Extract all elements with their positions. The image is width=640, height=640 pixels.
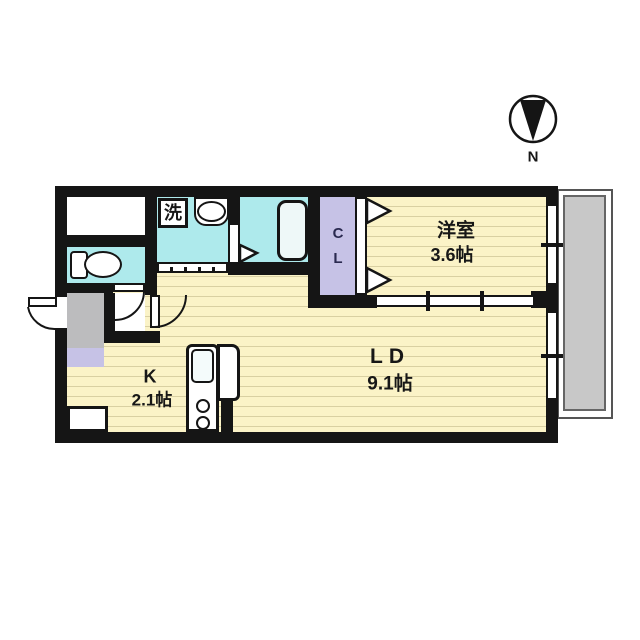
partition-tick-2	[480, 291, 484, 311]
wall-bath-bottom	[228, 262, 320, 275]
wall-genkan-right	[104, 293, 115, 335]
closet-door	[355, 197, 367, 295]
entrance-mat	[67, 348, 104, 367]
washing-machine-label: 洗	[164, 199, 182, 225]
western-room-name: 洋室	[437, 216, 475, 243]
western-room-area: 3.6帖	[430, 241, 473, 267]
kitchen-counter-right	[217, 344, 240, 401]
entrance-genkan	[67, 293, 104, 348]
toilet-door	[113, 283, 145, 292]
floor-plan: N 洋室 3.6帖 LD 9.1帖 K 2.1帖 CL 洗	[0, 0, 640, 640]
wall-hall-bottom	[104, 331, 160, 343]
wall-storage-bottom	[55, 235, 150, 247]
washbasin-bowl	[197, 201, 226, 222]
compass-needle	[520, 100, 546, 141]
window-ld-tick	[541, 354, 563, 358]
kitchen-sink	[191, 349, 214, 383]
kitchen-area-label: 2.1帖	[132, 386, 173, 411]
stove-burner-1	[196, 399, 210, 413]
bathtub	[277, 200, 308, 261]
wall-bottom	[55, 432, 558, 443]
wall-divider-stub	[531, 291, 548, 308]
wall-bath-left	[228, 186, 240, 226]
ld-room-area: 9.1帖	[367, 369, 412, 396]
north-label: N	[528, 149, 539, 166]
entrance-door	[28, 297, 57, 307]
wall-closet-bottom	[308, 295, 377, 308]
washroom-door-dash-4	[212, 267, 215, 272]
wall-top	[55, 186, 558, 197]
storage-room	[67, 197, 145, 235]
washroom-door-dash-2	[184, 267, 187, 272]
toilet-bowl	[84, 251, 122, 278]
toilet-vestibule	[115, 293, 145, 331]
window-western-tick	[541, 243, 563, 247]
kitchen-name: K	[144, 367, 157, 388]
balcony-floor	[563, 195, 606, 411]
kitchen-alcove	[67, 406, 108, 432]
closet-label: CL	[330, 221, 346, 271]
wall-bath-right	[308, 186, 320, 308]
wall-kitchen-stub	[221, 400, 233, 432]
wall-toilet-right	[145, 186, 157, 295]
partition-tick-1	[426, 291, 430, 311]
partition-western-ld	[377, 295, 533, 307]
compass	[510, 96, 556, 142]
wall-left-lower	[55, 328, 67, 443]
stove-burner-2	[196, 416, 210, 430]
bathroom-door	[228, 223, 240, 264]
hall-door	[150, 295, 160, 328]
wall-toilet-bottom	[55, 283, 113, 293]
entrance-door-arc	[28, 307, 55, 329]
washroom-door	[157, 262, 228, 273]
washroom-door-dash-3	[198, 267, 201, 272]
ld-room-name: LD	[370, 345, 410, 369]
washroom-door-dash-1	[170, 267, 173, 272]
